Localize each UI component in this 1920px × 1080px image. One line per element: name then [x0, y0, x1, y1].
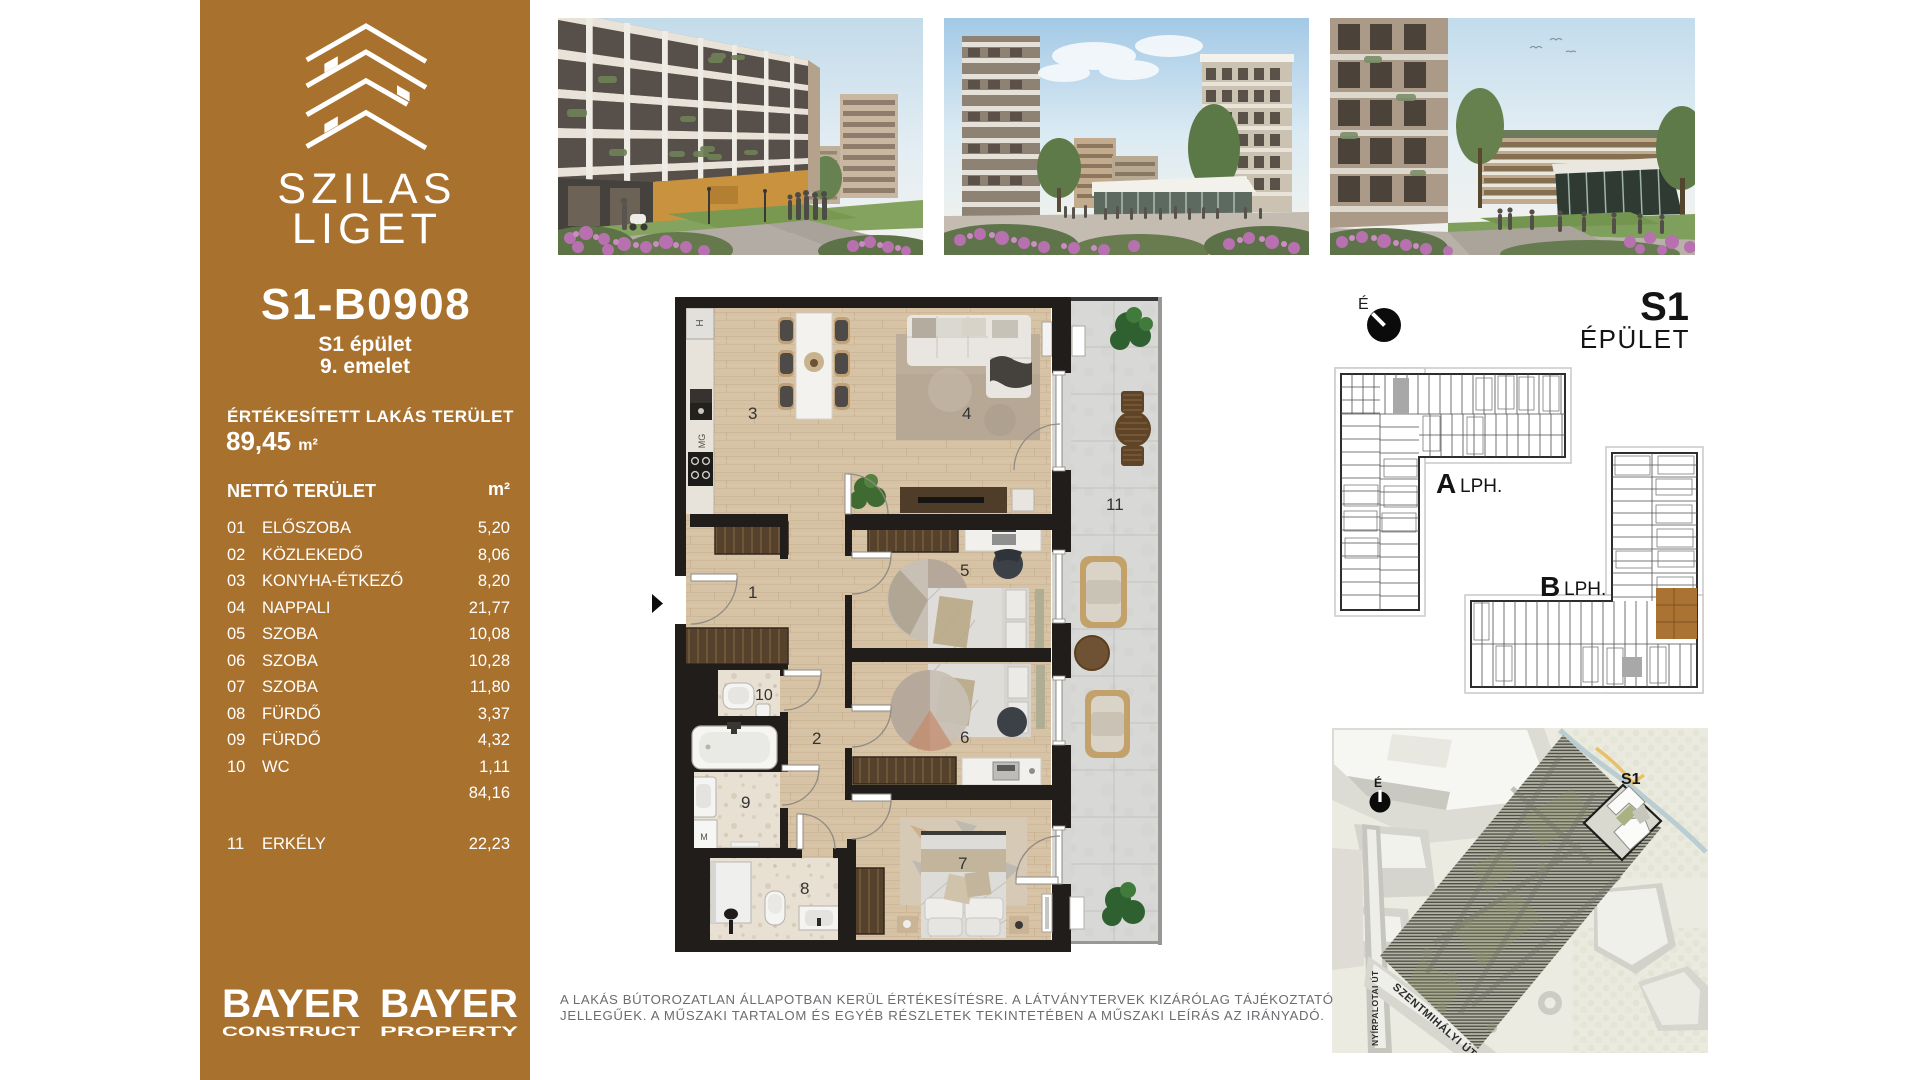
svg-text:CONSTRUCT: CONSTRUCT — [222, 1023, 360, 1039]
svg-text:6: 6 — [960, 728, 969, 747]
svg-text:S1: S1 — [1621, 771, 1641, 788]
svg-text:4: 4 — [962, 404, 971, 423]
svg-text:LPH.: LPH. — [1564, 579, 1606, 600]
svg-text:11: 11 — [1106, 495, 1124, 514]
svg-text:10: 10 — [755, 687, 773, 704]
svg-text:LPH.: LPH. — [1460, 476, 1502, 497]
svg-text:MG: MG — [697, 434, 707, 449]
svg-text:NYÍRPALOTAI ÚT: NYÍRPALOTAI ÚT — [1369, 970, 1380, 1046]
svg-text:M: M — [700, 832, 708, 842]
svg-text:1: 1 — [748, 583, 757, 602]
svg-text:H: H — [693, 319, 704, 326]
svg-text:S1: S1 — [1640, 285, 1689, 329]
svg-text:B: B — [1540, 571, 1560, 602]
svg-text:BAYER: BAYER — [380, 986, 518, 1026]
svg-text:BAYER: BAYER — [222, 986, 360, 1026]
svg-text:5: 5 — [960, 561, 969, 580]
svg-text:ÉPÜLET: ÉPÜLET — [1580, 324, 1690, 354]
svg-text:A: A — [1436, 468, 1456, 499]
svg-text:7: 7 — [958, 854, 967, 873]
svg-text:2: 2 — [812, 729, 821, 748]
svg-text:3: 3 — [748, 404, 757, 423]
svg-text:9: 9 — [741, 793, 750, 812]
svg-text:PROPERTY: PROPERTY — [380, 1023, 518, 1039]
svg-text:É: É — [1374, 775, 1382, 790]
svg-text:É: É — [1358, 294, 1369, 313]
svg-text:8: 8 — [800, 879, 809, 898]
